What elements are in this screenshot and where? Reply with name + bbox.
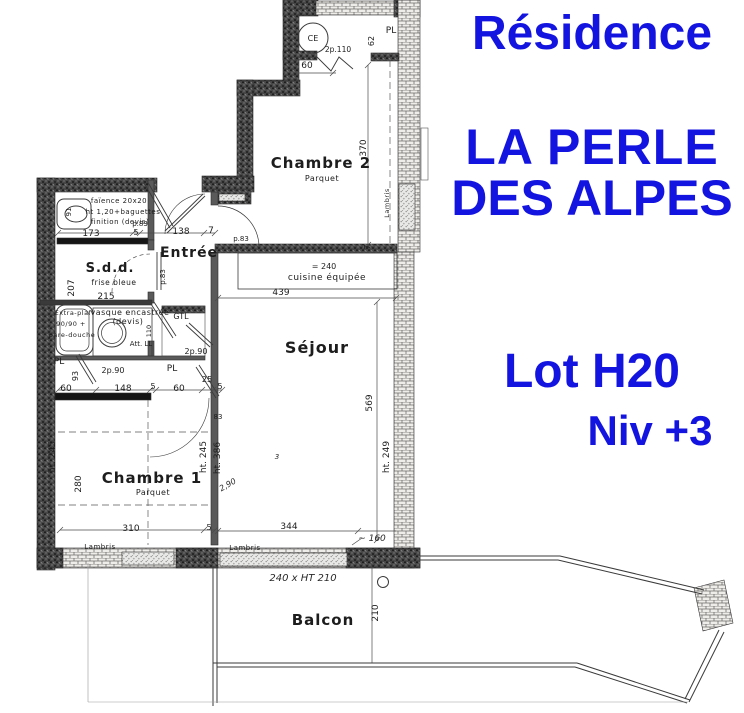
closet-leaf-a2 (189, 323, 213, 345)
shutter-box (421, 128, 428, 180)
dim-60c: 60 (301, 61, 313, 71)
window-sejour (220, 553, 347, 566)
sill-pl-ch2 (371, 53, 399, 61)
part-sejour-left (211, 253, 218, 545)
sill-ce (283, 51, 317, 60)
balcony-pier (694, 580, 733, 631)
wall-step-v (237, 80, 253, 182)
note-vasque-1: vasque encastrée (91, 307, 170, 317)
plan-labels: Chambre 2ParquetChambre 1ParquetSéjourEn… (48, 26, 396, 629)
dim-83: 83 (214, 413, 223, 421)
rail-bottom-slope-2 (575, 667, 687, 703)
dim-ht386: ht. 386 (213, 442, 223, 474)
hand-160: ~ 160 (358, 534, 386, 544)
dim-138: 138 (172, 227, 189, 237)
dim-569: 569 (365, 394, 375, 411)
residence-name-line1: LA PERLE (440, 122, 744, 172)
room-chambre-1-floor: Parquet (136, 488, 170, 497)
dim-25: 25 (202, 375, 212, 384)
dim-344: 344 (280, 522, 297, 532)
dim-148: 148 (114, 384, 131, 394)
dim-ht245-right: ht. 245 (199, 441, 209, 473)
note-faience-2: ht 1,20+baguettes (86, 208, 161, 216)
room-chambre-1: Chambre 1 (102, 469, 202, 487)
rail-right-2 (685, 630, 719, 699)
wall-black-2 (55, 393, 151, 400)
room-sdd-note: frise bleue (91, 278, 136, 287)
dim-93: 93 (71, 371, 80, 381)
lot-number: Lot H20 (440, 348, 744, 396)
note-vasque-2: (devis) (113, 317, 144, 326)
door-2p90-a: 2p.90 (102, 366, 125, 375)
wall-bottom-c1 (37, 548, 63, 568)
closet-pl-ch2: PL (386, 26, 396, 36)
dim-110: 110 (145, 325, 153, 337)
rail-top-2 (420, 560, 702, 594)
dim-173: 173 (82, 229, 99, 239)
closet-pl-hall: PL (167, 364, 177, 374)
wall-ch2-left (283, 0, 299, 92)
dim-ht245-left: ht. 245 (48, 441, 58, 473)
bifold-ch2 (317, 57, 353, 71)
note-lambris-a: Lambris (84, 543, 115, 551)
door-p83-b: p.83 (233, 235, 249, 243)
note-extraplaf-1: Extra-plaf (55, 309, 92, 317)
window-right (399, 184, 415, 230)
balcony-drain (378, 577, 389, 588)
fixture-ce: CE (308, 34, 319, 43)
hand-290: 2,90 (218, 476, 238, 493)
door-2p110: 2p.110 (325, 45, 351, 54)
room-balcon: Balcon (292, 611, 355, 629)
closet-leaf-a (186, 325, 210, 347)
dim-5a: 5 (133, 228, 138, 237)
dim-207: 207 (67, 279, 77, 296)
dim-60a: 60 (60, 384, 72, 394)
residence-name-line2: DES ALPES (440, 173, 744, 223)
level-label: Niv +3 (440, 410, 744, 452)
wall-left (37, 178, 55, 570)
wall-bottom-c2 (176, 548, 218, 568)
dim-7b: 7 (363, 244, 372, 249)
rail-right-1 (689, 632, 724, 702)
window-chambre1 (122, 552, 174, 565)
dim-ht249: ht. 249 (382, 441, 392, 473)
note-lambris-b: Lambris (229, 544, 260, 552)
part-hall-left-m1 (148, 240, 154, 250)
kitchen-counter (238, 253, 397, 289)
wall-top-window (316, 1, 396, 15)
wall-black-1 (57, 238, 149, 244)
part-hall-right-top (211, 192, 218, 205)
closet-pl-bath: PL (54, 357, 64, 367)
hand-window-note: 240 x HT 210 (269, 573, 336, 584)
entry-sill-window (219, 194, 245, 201)
dim-62: 62 (367, 36, 376, 46)
room-chambre-2: Chambre 2 (271, 154, 371, 172)
dim-7a: 7 (208, 226, 214, 236)
wall-right-lower (394, 252, 414, 568)
room-sdd: S.d.d. (86, 261, 135, 276)
wall-step-h2 (202, 176, 254, 192)
dim-215: 215 (97, 292, 114, 302)
dim-210: 210 (371, 604, 381, 621)
kitchen-label: cuisine équipée (288, 272, 366, 283)
wall-bottom-c3 (346, 548, 420, 568)
closet-gtl: GTL (173, 312, 189, 321)
dim-370: 370 (359, 139, 369, 156)
note-att-ll: Att. LL (130, 340, 153, 348)
balcony-railing (88, 556, 724, 706)
part-bath-split (40, 300, 152, 305)
room-sejour: Séjour (285, 338, 349, 357)
note-faience-3: finition (devis) (91, 218, 149, 226)
dim-280: 280 (74, 475, 84, 492)
dimension-lines (55, 62, 399, 663)
note-faience-1: faïence 20x20 (91, 197, 147, 205)
door-p83-sdd: p.83 (159, 269, 167, 285)
door-2p90-b: 2p.90 (185, 347, 208, 356)
note-extraplaf-3: pare-douche (49, 331, 95, 339)
rail-bottom-slope-1 (577, 663, 690, 700)
residence-title: Résidence (440, 10, 744, 58)
dim-60b: 60 (173, 384, 185, 394)
floor-plan-sheet: Chambre 2ParquetChambre 1ParquetSéjourEn… (0, 0, 744, 713)
dim-439: 439 (272, 288, 289, 298)
dim-5d: 5 (217, 382, 222, 391)
mark-3: 3 (275, 453, 279, 461)
room-entree: Entrée (160, 245, 218, 261)
kitchen-length: = 240 (312, 262, 337, 271)
dim-91: 91 (65, 208, 73, 217)
dim-310: 310 (122, 524, 139, 534)
dim-5c: 5 (150, 382, 155, 391)
note-extraplaf-2: 90/90 + (56, 320, 86, 328)
room-chambre-2-floor: Parquet (305, 174, 339, 183)
note-lambris-wall: Lambris (383, 188, 391, 218)
dim-5b: 5 (206, 523, 211, 532)
